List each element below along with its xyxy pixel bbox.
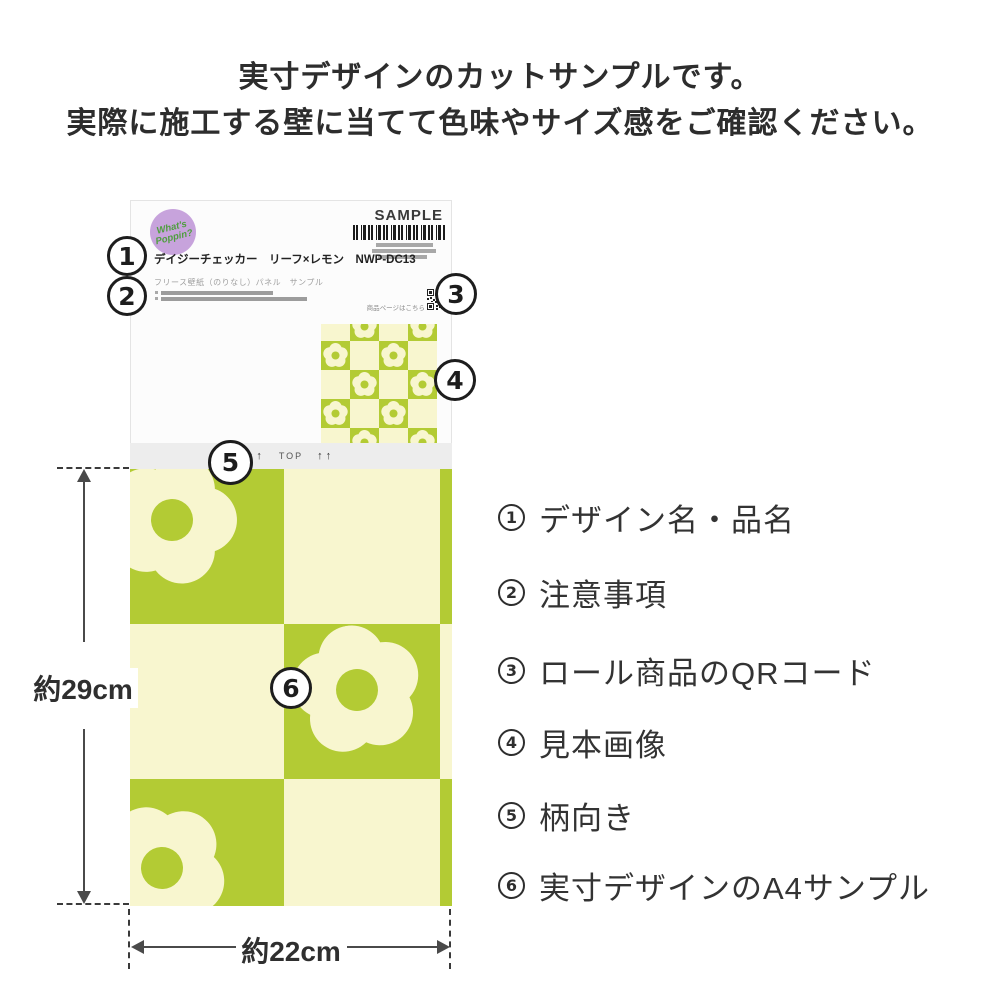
legend-number-6: 6 <box>498 872 525 899</box>
height-dimension-line <box>83 476 85 642</box>
legend-item-1: 1 デザイン名・品名 <box>498 495 795 539</box>
width-dimension-line <box>347 946 448 948</box>
header-line-1: 実寸デザインのカットサンプルです。 <box>0 52 1000 96</box>
dashed-extension-line <box>57 903 129 905</box>
callout-2: 2 <box>107 276 147 316</box>
header-line-2: 実際に施工する壁に当てて色味やサイズ感をご確認ください。 <box>0 98 1000 142</box>
legend-item-6: 6 実寸デザインのA4サンプル <box>498 863 930 907</box>
legend-label-6: 実寸デザインのA4サンプル <box>539 863 930 908</box>
note-bullet <box>155 297 158 300</box>
pattern-square-cream <box>440 624 452 779</box>
mini-sample-image <box>321 324 437 443</box>
height-dimension-label: 約29cm <box>28 668 138 708</box>
legend-number-4: 4 <box>498 729 525 756</box>
pattern-square-green <box>130 779 284 906</box>
top-label: TOP <box>279 451 303 461</box>
callout-5: 5 <box>208 440 253 485</box>
pattern-square-green <box>284 624 440 779</box>
width-dimension-line <box>137 946 237 948</box>
qr-caption: 商品ページはこちら <box>367 302 425 312</box>
dashed-extension-line <box>449 909 451 969</box>
legend-number-2: 2 <box>498 579 525 606</box>
arrowhead-left-icon <box>131 940 144 954</box>
legend-item-2: 2 注意事項 <box>498 570 667 614</box>
callout-6: 6 <box>270 667 312 709</box>
legend-label-4: 見本画像 <box>539 720 667 765</box>
note-bullet <box>155 291 158 294</box>
legend-label-2: 注意事項 <box>539 570 667 615</box>
dashed-extension-line <box>128 909 130 969</box>
barcode <box>353 225 445 240</box>
callout-3: 3 <box>435 273 477 315</box>
sample-label-area: What's Poppin? SAMPLE デイジーチェッカー リーフ×レモン … <box>130 200 452 443</box>
pattern-square-cream <box>284 469 440 624</box>
product-subtitle: フリース壁紙（のりなし）パネル サンプル <box>154 277 323 288</box>
daisy-flower <box>130 469 254 602</box>
up-arrows-icon: ↑↑ <box>317 450 334 462</box>
dashed-extension-line <box>57 467 129 469</box>
page: 実寸デザインのカットサンプルです。 実際に施工する壁に当てて色味やサイズ感をご確… <box>0 0 1000 1000</box>
pattern-square-green <box>440 779 452 906</box>
sample-card: What's Poppin? SAMPLE デイジーチェッカー リーフ×レモン … <box>130 200 452 906</box>
pattern-square-green <box>130 469 284 624</box>
callout-4: 4 <box>434 359 476 401</box>
arrowhead-up-icon <box>77 469 91 482</box>
product-title: デイジーチェッカー リーフ×レモン NWP-DC13 <box>154 251 416 267</box>
pattern-orientation-strip: ↑↑ TOP ↑↑ <box>130 443 452 469</box>
sample-word: SAMPLE <box>374 207 443 224</box>
barcode-caption-line <box>376 243 433 247</box>
legend-item-4: 4 見本画像 <box>498 720 667 764</box>
brand-badge-text: What's Poppin? <box>152 218 193 246</box>
note-line <box>161 291 273 295</box>
pattern-square-green <box>440 469 452 624</box>
legend-number-1: 1 <box>498 504 525 531</box>
legend-label-5: 柄向き <box>539 793 635 838</box>
brand-badge: What's Poppin? <box>150 209 196 255</box>
height-dimension-line <box>83 729 85 901</box>
legend-number-5: 5 <box>498 802 525 829</box>
legend-number-3: 3 <box>498 657 525 684</box>
legend-item-3: 3 ロール商品のQRコード <box>498 648 876 692</box>
daisy-flower <box>130 779 254 906</box>
legend-item-5: 5 柄向き <box>498 793 635 837</box>
width-dimension-label: 約22cm <box>236 930 346 970</box>
pattern-square-cream <box>130 624 284 779</box>
note-line <box>161 297 307 301</box>
legend-label-3: ロール商品のQRコード <box>539 648 876 693</box>
callout-1: 1 <box>107 236 147 276</box>
pattern-square-cream <box>284 779 440 906</box>
legend-label-1: デザイン名・品名 <box>539 495 795 540</box>
